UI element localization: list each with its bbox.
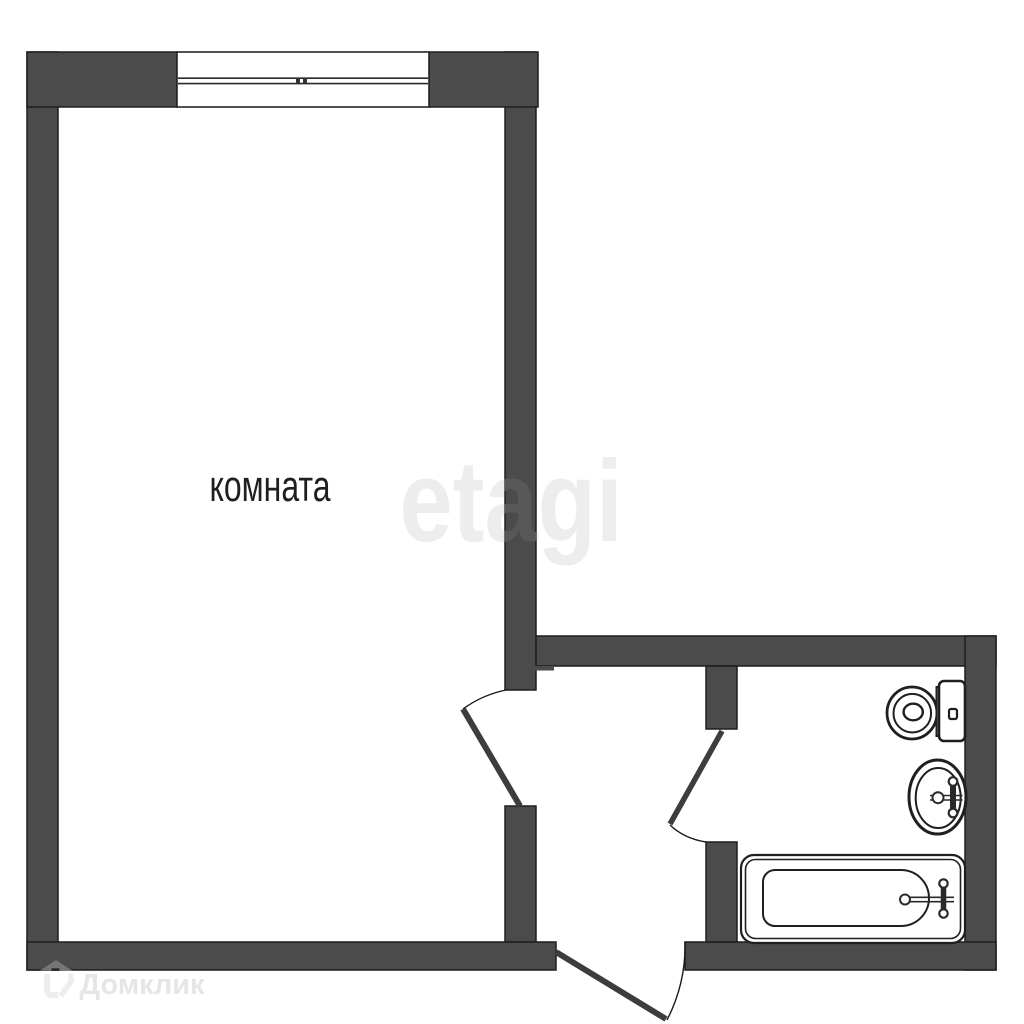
svg-text:комната: комната [210,462,331,511]
svg-text:Домклик: Домклик [80,969,206,1001]
svg-text:etagi: etagi [400,436,623,566]
